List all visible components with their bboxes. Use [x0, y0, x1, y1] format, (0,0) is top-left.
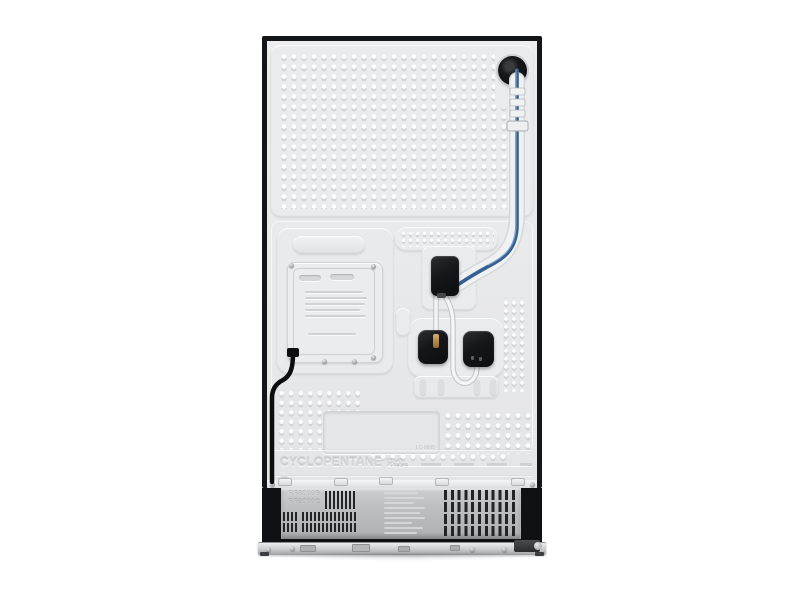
compressor-vent-right-r4 — [444, 526, 518, 536]
screw — [502, 547, 507, 552]
screw — [470, 547, 475, 552]
rail-bracket — [450, 545, 460, 551]
rail-bracket — [352, 544, 370, 552]
access-panel-handle — [293, 236, 365, 254]
compressor-vent-left-r1a — [283, 512, 299, 521]
water-valve-box — [431, 256, 459, 296]
brass-fitting — [433, 334, 439, 348]
pedestal-rib — [438, 379, 444, 395]
pedestal-rib — [420, 379, 426, 395]
compressor-vent-left-r1b — [302, 512, 357, 521]
etched-line — [305, 309, 360, 311]
flange-tab — [511, 478, 525, 486]
screw — [371, 355, 376, 360]
pedestal-rib — [490, 379, 496, 395]
ridge-line — [272, 475, 532, 477]
flange-tab — [379, 477, 393, 485]
screw — [352, 359, 357, 364]
drop-shadow — [268, 553, 536, 561]
access-panel-inner-line — [293, 268, 375, 355]
top-dot-texture — [279, 53, 525, 209]
pedestal-rib — [474, 379, 480, 395]
cover-pin-hole — [471, 356, 474, 360]
etched-line — [384, 502, 414, 504]
flange-tab — [435, 478, 449, 486]
valve-cover-right — [463, 331, 494, 367]
compressor-vent-left-r2a — [283, 523, 299, 532]
compressor-vent-left-r2b — [302, 523, 357, 532]
cyclopentane-emboss: CYCLOPENTANE 环戊烷 — [280, 453, 410, 469]
etched-line — [384, 507, 425, 509]
flange-tab — [278, 478, 292, 486]
flange-tab — [334, 478, 348, 486]
valve-pedestal — [414, 376, 498, 398]
compressor-vent-right-r1 — [444, 490, 518, 500]
rail-bracket — [398, 546, 410, 552]
etched-line — [305, 315, 366, 317]
foot-right — [535, 552, 544, 556]
etched-line — [305, 303, 365, 305]
access-panel-slot-right — [330, 274, 354, 280]
cover-pin-hole — [479, 357, 482, 361]
etched-line — [308, 333, 356, 335]
cable-grommet — [287, 348, 299, 357]
etched-line — [384, 532, 417, 534]
etched-line — [384, 497, 424, 499]
dot-badge-texture — [400, 231, 494, 247]
screw — [289, 263, 294, 268]
etched-line — [384, 527, 423, 529]
screw — [270, 482, 275, 487]
water-inlet-grommet — [498, 56, 527, 85]
cyclopentane-text: CYCLOPENTANE — [280, 455, 382, 469]
bottom-right-dot-grid — [443, 412, 533, 454]
etched-line — [384, 522, 412, 524]
valve-connector-nub — [437, 293, 446, 298]
etched-line — [384, 492, 418, 494]
compressor-vent-left-top — [325, 491, 357, 509]
right-dot-cluster — [502, 300, 526, 392]
back-panel: LC-9995 CYCLOPENTANE 环戊烷 — [267, 41, 537, 480]
ridge-line — [272, 449, 532, 451]
model-line2: RF9000C — [288, 499, 321, 507]
model-emboss: RF8000B RF9000C — [288, 491, 321, 507]
compressor-vent-right-r2 — [444, 502, 518, 512]
etched-line — [305, 291, 363, 293]
etched-line — [384, 517, 425, 519]
rail-bracket — [300, 545, 316, 552]
screw — [371, 264, 376, 269]
screw — [322, 359, 327, 364]
label-recess: LC-9995 — [323, 411, 440, 454]
valve-side-tab — [396, 308, 410, 336]
access-panel-slot-left — [299, 275, 321, 281]
etched-line — [384, 512, 420, 514]
compressor-vent-right-r3 — [444, 514, 518, 524]
refrigerator-back-photo: LC-9995 CYCLOPENTANE 环戊烷 — [0, 0, 800, 600]
screw — [290, 546, 295, 551]
etched-line — [305, 297, 367, 299]
screw — [530, 482, 535, 487]
model-line1: RF8000B — [288, 491, 321, 499]
service-valve-cap — [534, 542, 542, 550]
